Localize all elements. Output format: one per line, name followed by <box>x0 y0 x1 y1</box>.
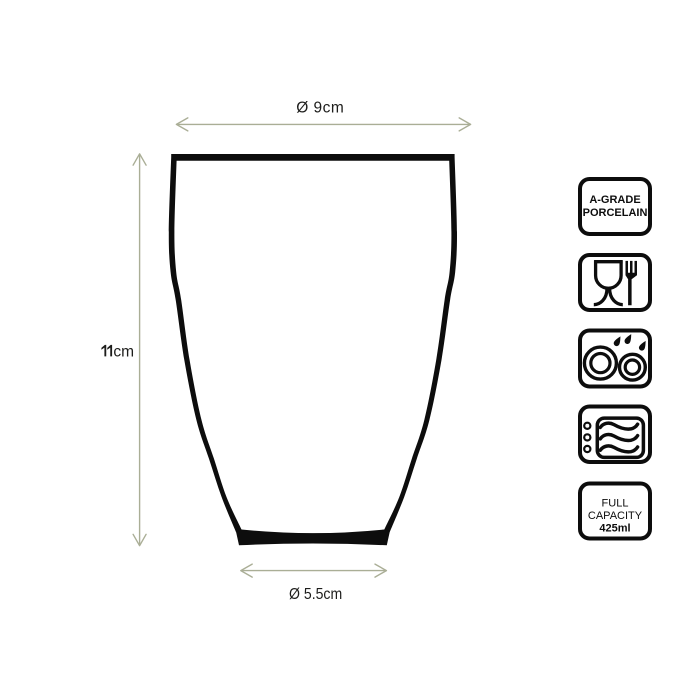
svg-text:Ø 9cm: Ø 9cm <box>296 100 344 117</box>
svg-text:PORCELAIN: PORCELAIN <box>583 207 648 219</box>
svg-text:cm: cm <box>113 343 134 360</box>
svg-text:425ml: 425ml <box>599 523 630 535</box>
svg-text:FULL: FULL <box>602 498 629 510</box>
svg-text:A-GRADE: A-GRADE <box>589 194 640 206</box>
svg-text:Ø 5.5cm: Ø 5.5cm <box>289 586 342 603</box>
svg-text:CAPACITY: CAPACITY <box>588 510 643 522</box>
